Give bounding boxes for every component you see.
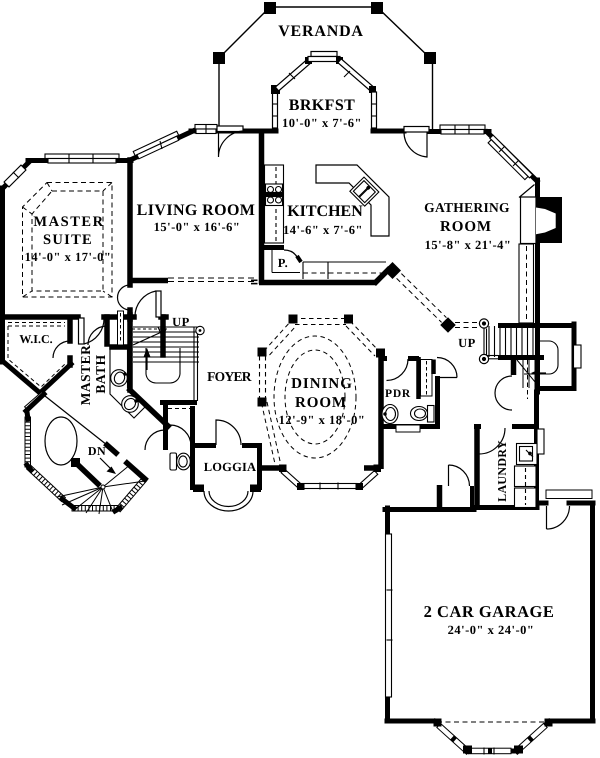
svg-text:LOGGIA: LOGGIA bbox=[204, 460, 257, 474]
svg-text:UP: UP bbox=[172, 315, 190, 329]
svg-text:14'-6" x 7'-6": 14'-6" x 7'-6" bbox=[283, 223, 363, 237]
svg-text:W.I.C.: W.I.C. bbox=[19, 332, 52, 346]
svg-text:MASTER: MASTER bbox=[33, 214, 104, 230]
svg-text:DINING: DINING bbox=[291, 376, 353, 392]
svg-text:P.: P. bbox=[278, 256, 289, 270]
svg-text:BATH: BATH bbox=[93, 354, 108, 393]
svg-text:DN: DN bbox=[88, 444, 106, 458]
svg-text:ROOM: ROOM bbox=[440, 219, 492, 235]
svg-text:2 CAR GARAGE: 2 CAR GARAGE bbox=[424, 602, 555, 621]
svg-text:SUITE: SUITE bbox=[43, 232, 93, 248]
svg-text:ROOM: ROOM bbox=[295, 395, 347, 411]
svg-text:10'-0" x 7'-6": 10'-0" x 7'-6" bbox=[282, 116, 362, 130]
svg-text:24'-0" x 24'-0": 24'-0" x 24'-0" bbox=[448, 623, 535, 637]
svg-text:MASTER: MASTER bbox=[78, 345, 93, 406]
svg-text:14'-0" x 17'-0": 14'-0" x 17'-0" bbox=[25, 250, 112, 264]
svg-text:FOYER: FOYER bbox=[207, 369, 252, 384]
svg-text:UP: UP bbox=[458, 336, 476, 350]
svg-text:VERANDA: VERANDA bbox=[278, 23, 364, 40]
svg-text:15'-8" x 21'-4": 15'-8" x 21'-4" bbox=[425, 238, 512, 252]
svg-text:PDR: PDR bbox=[385, 388, 411, 400]
svg-text:LAUNDRY: LAUNDRY bbox=[495, 440, 509, 502]
svg-text:15'-0" x 16'-6": 15'-0" x 16'-6" bbox=[154, 220, 241, 234]
svg-text:GATHERING: GATHERING bbox=[424, 200, 510, 215]
svg-text:KITCHEN: KITCHEN bbox=[287, 203, 363, 220]
svg-text:12'-9" x 18'-0": 12'-9" x 18'-0" bbox=[279, 413, 366, 427]
svg-text:BRKFST: BRKFST bbox=[289, 97, 355, 114]
svg-text:LIVING ROOM: LIVING ROOM bbox=[137, 202, 256, 219]
